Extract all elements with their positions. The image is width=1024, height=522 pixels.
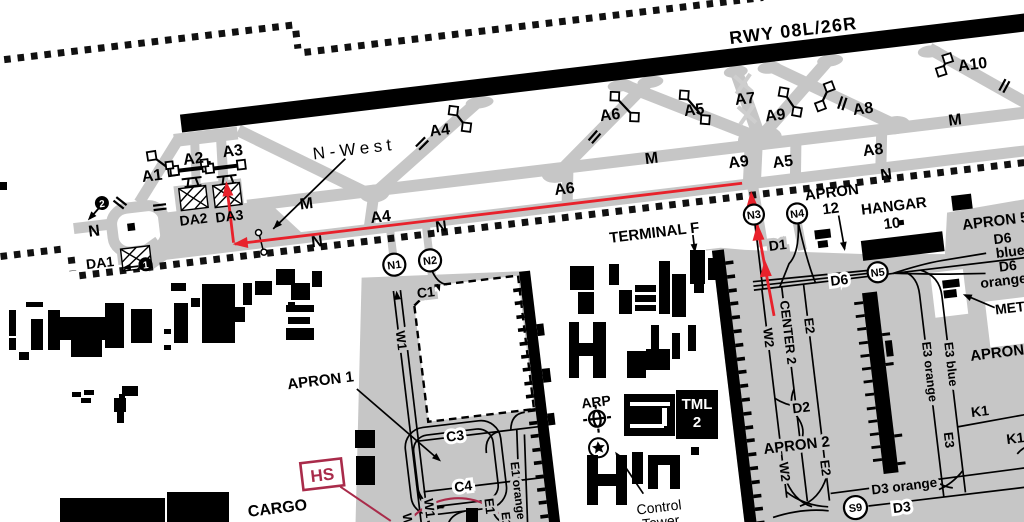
svg-text:S9: S9	[848, 502, 863, 516]
svg-text:N5: N5	[870, 266, 885, 280]
svg-text:10: 10	[883, 214, 902, 233]
svg-text:N3: N3	[746, 209, 761, 223]
svg-text:C4: C4	[453, 477, 473, 495]
svg-text:HS: HS	[309, 464, 335, 486]
svg-text:W2: W2	[760, 327, 777, 348]
svg-text:DA1: DA1	[85, 253, 115, 272]
svg-text:D6: D6	[829, 271, 849, 289]
svg-text:N2: N2	[422, 255, 437, 269]
svg-text:E2: E2	[801, 317, 818, 335]
svg-text:W2: W2	[776, 461, 793, 482]
svg-text:D2: D2	[791, 398, 811, 416]
svg-text:A8: A8	[862, 141, 884, 160]
svg-text:A3: A3	[222, 142, 244, 161]
svg-text:A4: A4	[429, 121, 451, 140]
svg-text:A6: A6	[553, 180, 575, 199]
svg-text:A8: A8	[852, 100, 874, 119]
svg-text:A9: A9	[727, 153, 749, 172]
svg-text:DA2: DA2	[179, 210, 209, 229]
svg-text:A5: A5	[683, 101, 705, 120]
svg-text:N: N	[310, 233, 324, 251]
svg-text:A6: A6	[599, 106, 621, 125]
svg-text:N1: N1	[387, 259, 402, 273]
svg-text:DA3: DA3	[214, 206, 244, 225]
svg-text:A9: A9	[764, 106, 786, 125]
svg-text:K1: K1	[1006, 429, 1024, 447]
svg-text:E1: E1	[498, 511, 514, 522]
svg-text:W1: W1	[400, 512, 417, 522]
svg-text:W1: W1	[393, 330, 410, 351]
svg-text:M: M	[948, 111, 963, 129]
svg-text:N: N	[434, 218, 448, 236]
svg-text:K1: K1	[970, 402, 990, 420]
svg-text:E3: E3	[941, 431, 958, 449]
svg-text:2: 2	[693, 414, 701, 431]
svg-text:N: N	[879, 166, 893, 184]
svg-text:C1: C1	[416, 283, 436, 301]
svg-text:M: M	[299, 195, 314, 213]
svg-text:N4: N4	[789, 207, 805, 221]
svg-text:E2: E2	[817, 459, 834, 477]
svg-text:12: 12	[821, 199, 840, 218]
svg-text:A10: A10	[957, 55, 988, 75]
svg-text:A5: A5	[772, 153, 794, 172]
svg-text:D3: D3	[892, 498, 912, 516]
svg-text:D1: D1	[768, 236, 788, 254]
svg-text:A7: A7	[734, 90, 756, 109]
svg-text:MET: MET	[994, 298, 1024, 317]
svg-text:A2: A2	[182, 150, 204, 169]
svg-text:TML: TML	[682, 396, 713, 413]
svg-text:C3: C3	[445, 427, 465, 445]
svg-text:N: N	[88, 223, 102, 241]
svg-text:A4: A4	[369, 208, 391, 227]
svg-text:M: M	[644, 150, 659, 168]
svg-text:E1: E1	[481, 497, 498, 515]
svg-text:A1: A1	[141, 167, 163, 186]
svg-text:W1: W1	[421, 498, 438, 519]
